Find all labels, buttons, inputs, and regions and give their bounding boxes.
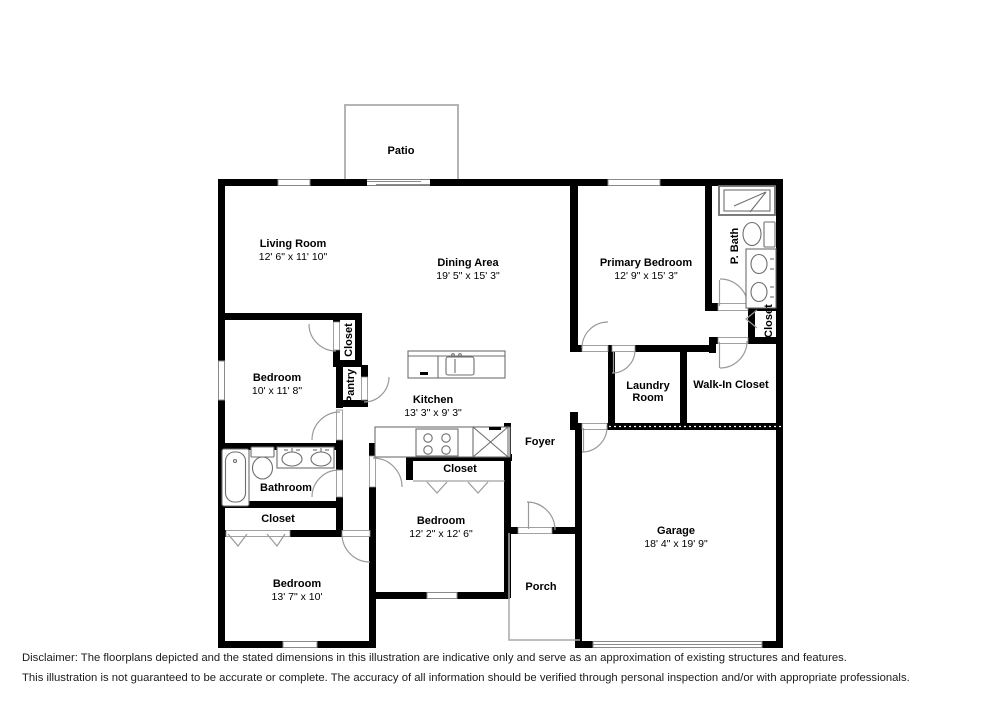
pbath-toilet: [743, 222, 775, 247]
laundry-door: [612, 350, 635, 373]
dining-area-label: Dining Area: [437, 257, 499, 269]
primary-closet-label: Closet: [763, 304, 775, 338]
refrigerator: [473, 427, 508, 457]
patio-label: Patio: [388, 145, 415, 157]
laundry-label-line1: Laundry: [626, 380, 670, 392]
kitchen-dims: 13' 3" x 9' 3": [404, 407, 462, 419]
floorplan-drawing: Patio Living Room 12' 6" x 11' 10" Dinin…: [0, 0, 1000, 707]
walk-in-closet-label: Walk-In Closet: [693, 379, 769, 391]
laundry-label-line2: Room: [632, 392, 663, 404]
bedroom4-door: [342, 534, 370, 562]
primary-bedroom-label: Primary Bedroom: [600, 257, 693, 269]
bathroom-door: [312, 470, 339, 497]
kitchen-counter: [375, 427, 510, 457]
bedroom2-label: Bedroom: [253, 372, 302, 384]
dining-area-dims: 19' 5" x 15' 3": [436, 270, 500, 282]
pantry-label: Pantry: [345, 368, 357, 403]
living-room-window: [278, 180, 310, 186]
disclaimer-line-2: This illustration is not guaranteed to b…: [22, 672, 910, 684]
closet2-door: [309, 324, 336, 351]
primary-bedroom-window: [608, 180, 660, 186]
bedroom2-door: [312, 412, 340, 440]
p-bath-label: P. Bath: [729, 227, 741, 264]
island-sink: [446, 354, 474, 375]
bedroom3-closet-label: Closet: [443, 463, 477, 475]
walk-in-closet-door: [720, 341, 747, 368]
porch-label: Porch: [525, 581, 556, 593]
patio-outline: [345, 105, 458, 183]
garage-door: [593, 642, 762, 648]
kitchen-label: Kitchen: [413, 394, 454, 406]
bathtub: [222, 449, 249, 506]
hall-closet-label: Closet: [261, 513, 295, 525]
bathroom-vanity: [277, 447, 334, 468]
bedroom3-dims: 12' 2" x 12' 6": [409, 528, 473, 540]
pbath-door: [720, 279, 748, 307]
front-door: [527, 502, 555, 530]
primary-bedroom-door: [582, 322, 608, 348]
patio-sliding-door: [367, 180, 430, 186]
closet2-label: Closet: [343, 323, 355, 357]
bedroom4-dims: 13' 7" x 10': [272, 591, 323, 603]
bedroom2-window: [219, 361, 225, 400]
bedroom4-closet-bifold: [226, 531, 290, 547]
primary-bedroom-dims: 12' 9" x 15' 3": [614, 270, 678, 282]
garage-dims: 18' 4" x 19' 9": [644, 538, 708, 550]
floorplan-page: Patio Living Room 12' 6" x 11' 10" Dinin…: [0, 0, 1000, 707]
bedroom3-door: [373, 458, 402, 487]
garage-label: Garage: [657, 525, 695, 537]
bathroom-toilet: [251, 447, 274, 479]
shower: [719, 186, 775, 215]
bedroom3-window: [427, 593, 457, 599]
bedroom3-label: Bedroom: [417, 515, 466, 527]
bedroom4-window: [283, 642, 317, 648]
disclaimer-line-1: Disclaimer: The floorplans depicted and …: [22, 652, 847, 664]
pbath-vanity: [746, 249, 776, 308]
living-room-label: Living Room: [260, 238, 327, 250]
bedroom3-closet-bifold: [413, 481, 505, 493]
bathroom-label: Bathroom: [260, 482, 312, 494]
garage-entry-door: [582, 427, 607, 452]
kitchen-island: [408, 351, 505, 378]
door-swings: [226, 279, 757, 562]
foyer-label: Foyer: [525, 436, 556, 448]
stove: [416, 429, 458, 456]
bedroom4-label: Bedroom: [273, 578, 322, 590]
living-room-dims: 12' 6" x 11' 10": [259, 251, 328, 263]
bedroom2-dims: 10' x 11' 8": [252, 385, 302, 397]
